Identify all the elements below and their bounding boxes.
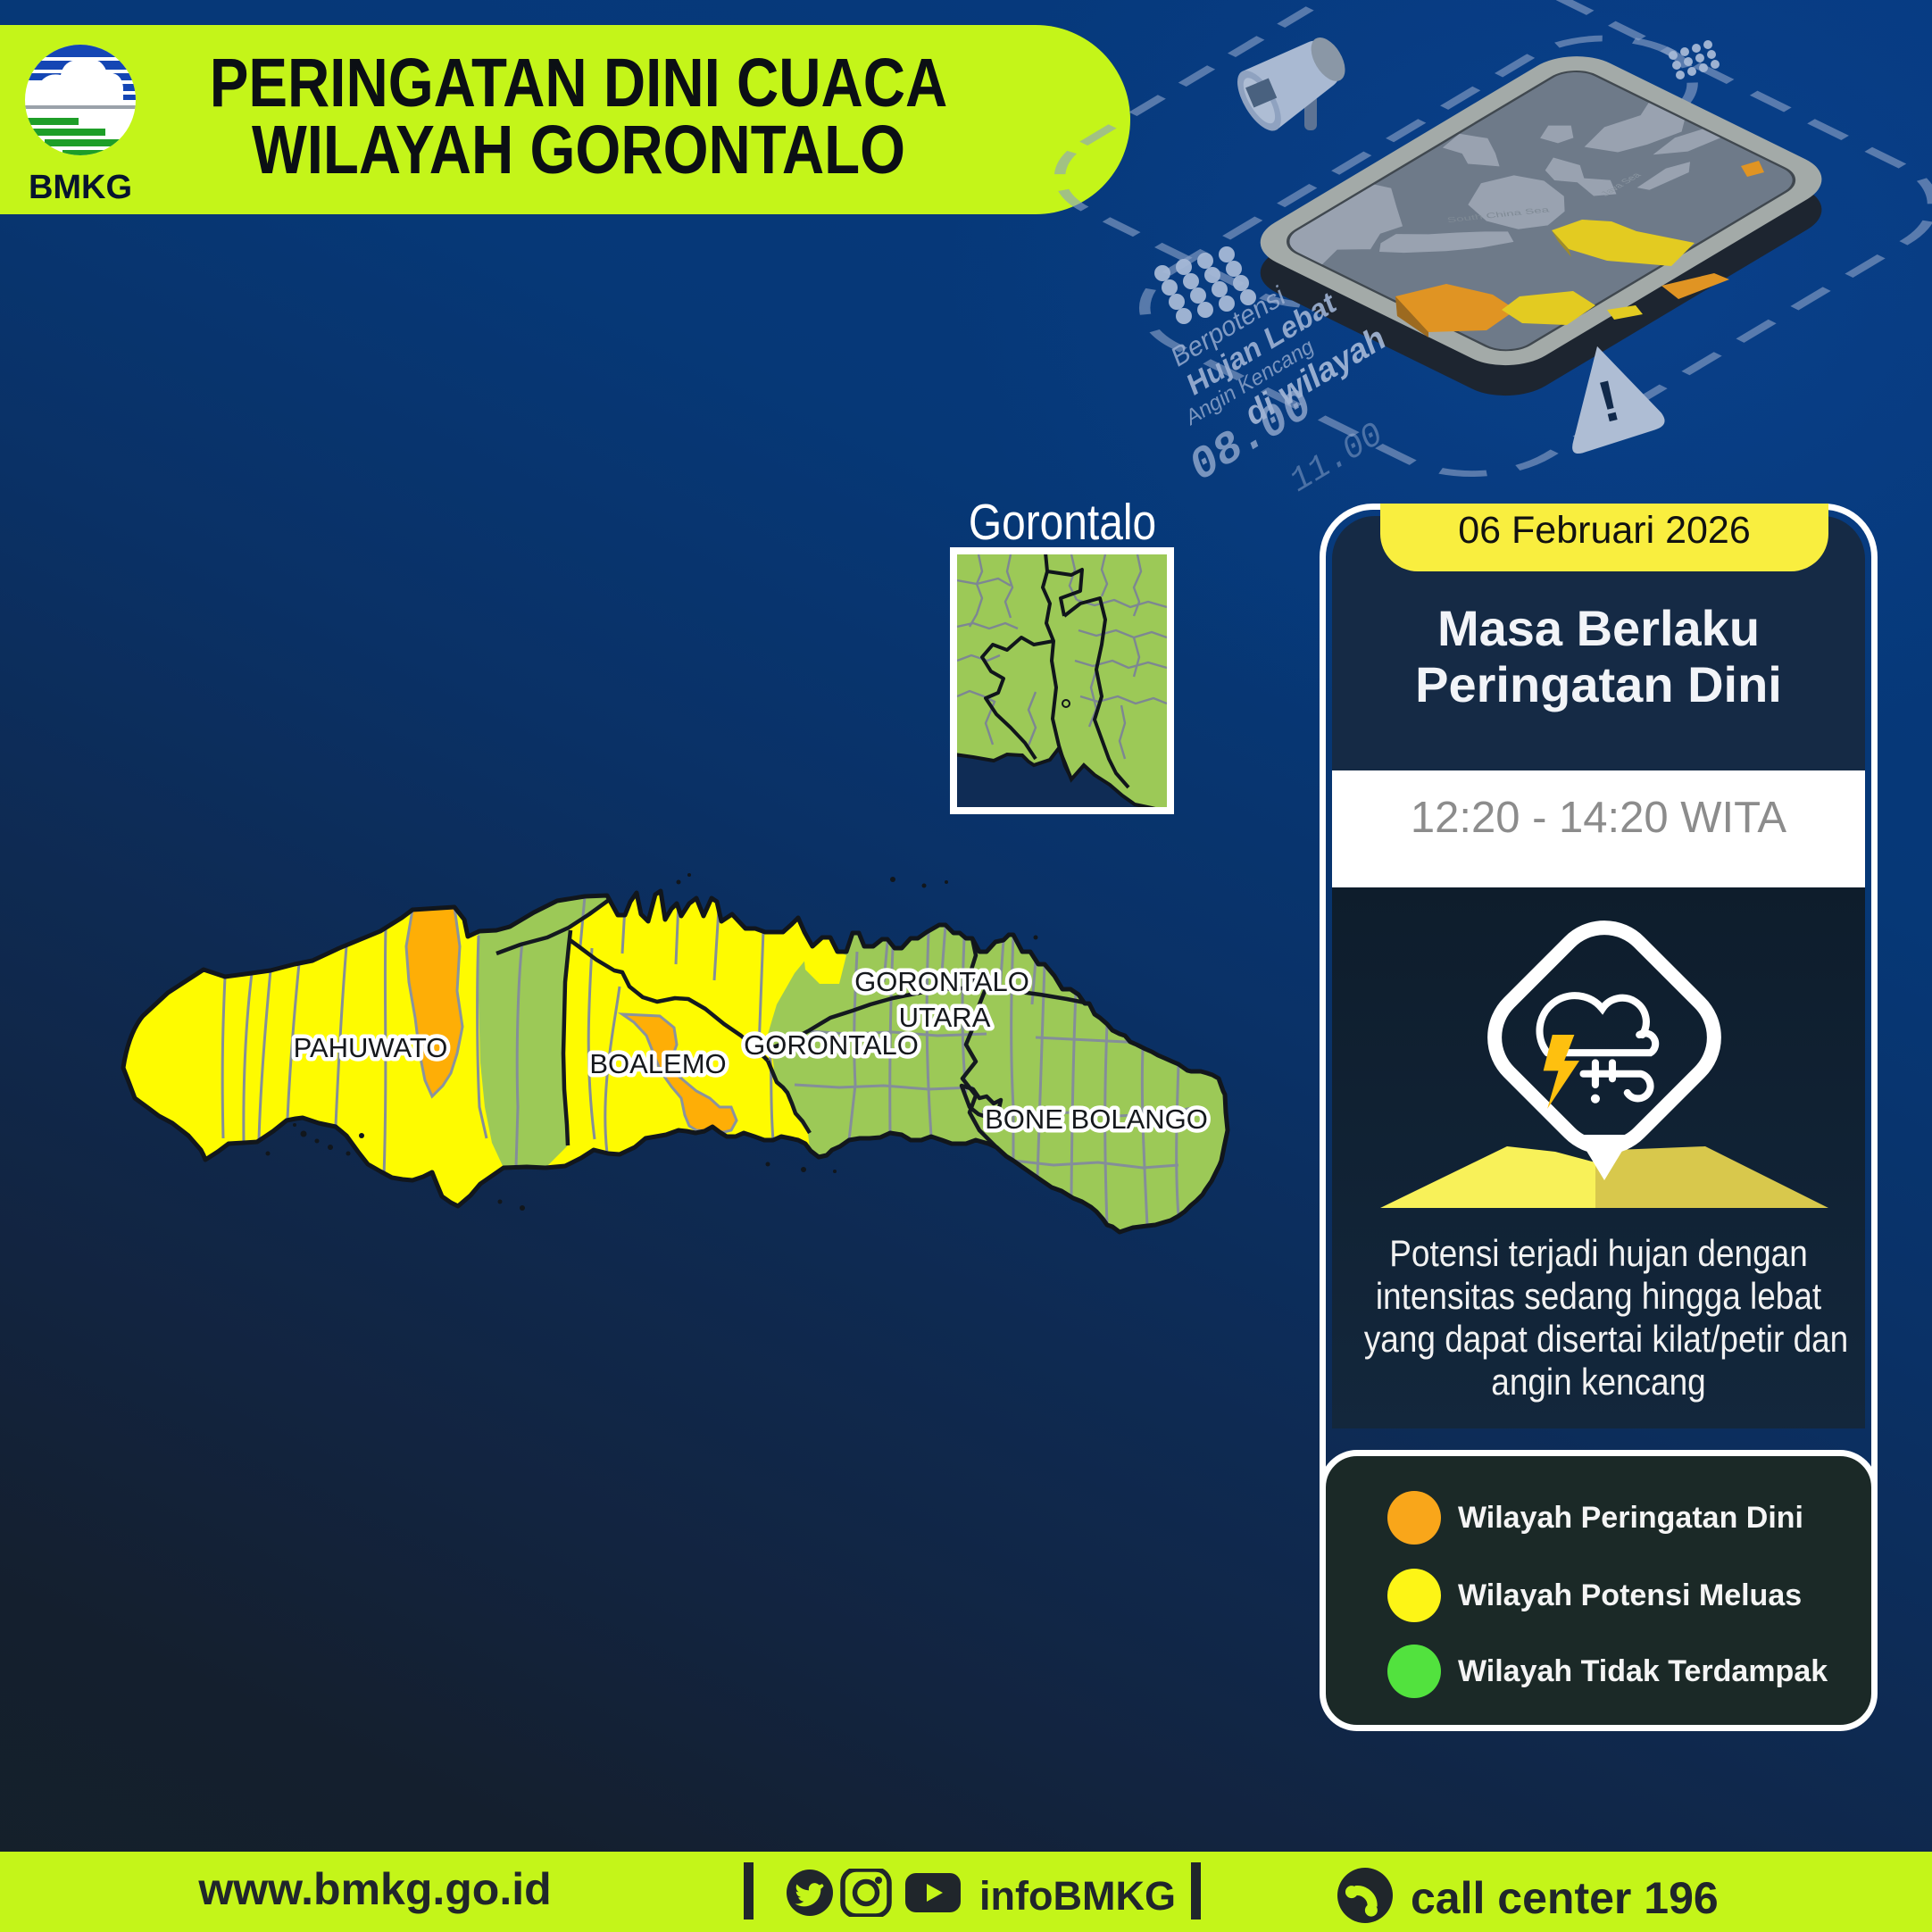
svg-text:BOALEMO: BOALEMO <box>589 1048 726 1079</box>
svg-text:UTARA: UTARA <box>899 1002 991 1033</box>
svg-text:PAHUWATO: PAHUWATO <box>294 1032 448 1063</box>
svg-text:GORONTALO: GORONTALO <box>854 966 1029 997</box>
svg-text:GORONTALO: GORONTALO <box>744 1029 919 1061</box>
svg-text:BONE BOLANGO: BONE BOLANGO <box>985 1103 1208 1135</box>
svg-text:BMKG: BMKG <box>29 169 132 205</box>
